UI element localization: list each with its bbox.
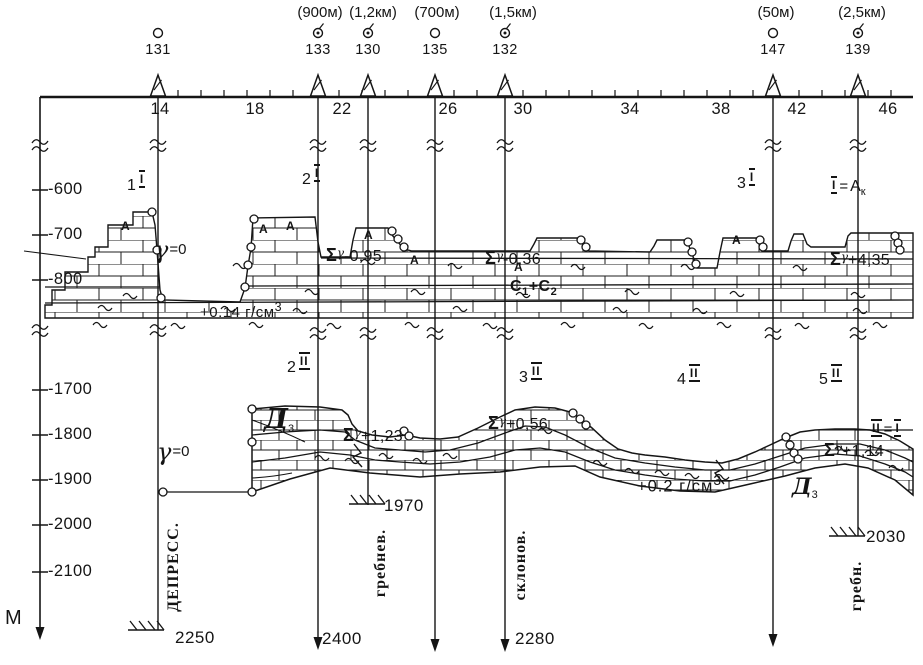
well-id-label: 133 (305, 43, 330, 58)
formation-label-c1c2: С1+С2 (510, 279, 557, 298)
profile-label-3-I: 3I (737, 175, 755, 193)
depth-tick-label: -2100 (48, 563, 92, 580)
roman-numeral: I (314, 164, 320, 182)
profile-label-3-II: 3II (519, 369, 542, 387)
wellhead-symbol-139 (854, 24, 864, 38)
benchmark-triangle-130 (361, 75, 376, 96)
benchmark-triangle-133 (311, 75, 326, 96)
scale-tick-label: 34 (621, 101, 640, 118)
roman-numeral: II (871, 419, 882, 437)
wellhead-symbol-147 (769, 29, 778, 38)
lithology-a-letter: А (121, 220, 130, 232)
scale-tick-label: 46 (879, 101, 898, 118)
well-category-depression: ДЕПРЕСС. (166, 492, 182, 642)
scale-tick-label: 42 (788, 101, 807, 118)
well-id-label: 132 (492, 43, 517, 58)
density-label-lower: +0.2 г/см3 (637, 474, 722, 495)
sigma-anomaly-lower-1: Σγ+1,23 (343, 426, 403, 445)
scale-tick-label: 22 (333, 101, 352, 118)
sigma-anomaly-upper-1: Σγ-0,95 (326, 246, 382, 265)
profile-label-2-I: 2I (302, 171, 320, 189)
well-category-grebnev: гребнев. (373, 488, 389, 638)
sigma-anomaly-lower-2: Σγ+0,56 (488, 414, 548, 433)
well-depth-1970: 1970 (384, 497, 424, 514)
wellhead-symbol-130 (364, 24, 374, 38)
well-id-label: 147 (760, 43, 785, 58)
section-linework (0, 0, 923, 665)
wellhead-symbol-135 (431, 29, 440, 38)
well-depth-2030: 2030 (866, 528, 906, 545)
lithology-a-letter: А (364, 229, 373, 241)
well-id-label: 130 (355, 43, 380, 58)
roman-numeral: I (831, 176, 837, 194)
density-label-upper: +0.14 г/см3 (200, 301, 282, 320)
gamma-symbol: γ (499, 414, 506, 428)
gamma-symbol: γ (496, 249, 503, 263)
gamma-zero-upper: γ=0 (154, 238, 186, 262)
gamma-symbol: γ (835, 441, 842, 455)
gamma-symbol: γ (841, 250, 848, 264)
well-lines (128, 97, 866, 652)
scale-tick-label: 14 (151, 101, 170, 118)
well-depth-2400: 2400 (322, 630, 362, 647)
scale-tick-label: 30 (514, 101, 533, 118)
formation-label-d3-right: Д3 (792, 476, 818, 501)
well-offset-distance-label: (900м) (297, 5, 342, 20)
profile-label-4-II: 4II (677, 371, 700, 389)
profile-label-5-II: 5II (819, 371, 842, 389)
roman-numeral: II (689, 364, 700, 382)
lithology-a-letter: А (259, 223, 268, 235)
sigma-anomaly-upper-3: Σγ+4,35 (830, 250, 890, 269)
depth-tick-label: -2000 (48, 516, 92, 533)
roman-numeral: II (831, 364, 842, 382)
lithology-a-letter: А (410, 254, 419, 266)
lithology-a-letter: А (286, 220, 295, 232)
benchmark-triangle-147 (766, 75, 781, 96)
benchmark-triangle-135 (428, 75, 443, 96)
roman-numeral: II (531, 362, 542, 380)
scale-tick-label: 38 (712, 101, 731, 118)
sigma-anomaly-lower-3: Σγ+1,14 (824, 441, 884, 460)
sigma-symbol: Σ (824, 440, 835, 460)
depth-tick-label: -600 (48, 181, 83, 198)
gamma-zero-lower: γ=0 (157, 440, 189, 464)
well-id-label: 135 (422, 43, 447, 58)
well-offset-distance-label: (700м) (414, 5, 459, 20)
depth-tick-label: -700 (48, 226, 83, 243)
depth-tick-label: -1700 (48, 381, 92, 398)
wellhead-symbol-131 (154, 29, 163, 38)
well-id-label: 131 (145, 43, 170, 58)
gamma-symbol: γ (337, 246, 344, 260)
formation-label-d3-left: Д3 (264, 406, 294, 435)
gamma-symbol: γ (154, 236, 168, 264)
identity-label-lower: II=I (871, 421, 901, 439)
axis-leader-line (24, 251, 86, 259)
depth-tick-label: -800 (48, 271, 83, 288)
benchmark-triangle-139 (851, 75, 866, 96)
well-category-sklonov: склонов. (513, 490, 529, 640)
well-id-label: 139 (845, 43, 870, 58)
top-ruler (40, 90, 913, 97)
benchmark-triangles (151, 75, 866, 96)
well-offset-distance-label: (2,5км) (838, 5, 886, 20)
benchmark-triangle-132 (498, 75, 513, 96)
depth-axis (32, 97, 48, 640)
well-category-grebn: гребн. (849, 511, 865, 661)
sigma-anomaly-upper-2: Σγ-0,36 (485, 249, 541, 268)
gamma-symbol: γ (157, 438, 171, 466)
benchmark-triangle-131 (151, 75, 166, 96)
roman-numeral: I (894, 419, 900, 437)
wellhead-symbol-132 (501, 24, 511, 38)
axis-unit-label: М (5, 608, 22, 628)
identity-label-upper: I=Ак (831, 178, 866, 198)
sigma-symbol: Σ (485, 248, 496, 268)
profile-label-2-II: 2II (287, 359, 310, 377)
depth-tick-label: -1900 (48, 471, 92, 488)
sigma-symbol: Σ (326, 245, 337, 265)
roman-numeral: I (139, 170, 145, 188)
geological-cross-section: 141822263034384246 -600-700-800-1700-180… (0, 0, 923, 665)
scale-tick-label: 18 (246, 101, 265, 118)
wellhead-symbols (154, 24, 864, 38)
profile-label-1-I: 1I (127, 177, 145, 195)
sigma-symbol: Σ (488, 413, 499, 433)
roman-numeral: I (749, 168, 755, 186)
well-offset-distance-label: (1,5км) (489, 5, 537, 20)
well-offset-distance-label: (1,2км) (349, 5, 397, 20)
lithology-a-letter: А (732, 234, 741, 246)
sigma-symbol: Σ (343, 425, 354, 445)
gamma-symbol: γ (354, 426, 361, 440)
sigma-symbol: Σ (830, 249, 841, 269)
wellhead-symbol-133 (314, 24, 324, 38)
well-offset-distance-label: (50м) (758, 5, 795, 20)
roman-numeral: II (299, 352, 310, 370)
depth-tick-label: -1800 (48, 426, 92, 443)
scale-tick-label: 26 (439, 101, 458, 118)
